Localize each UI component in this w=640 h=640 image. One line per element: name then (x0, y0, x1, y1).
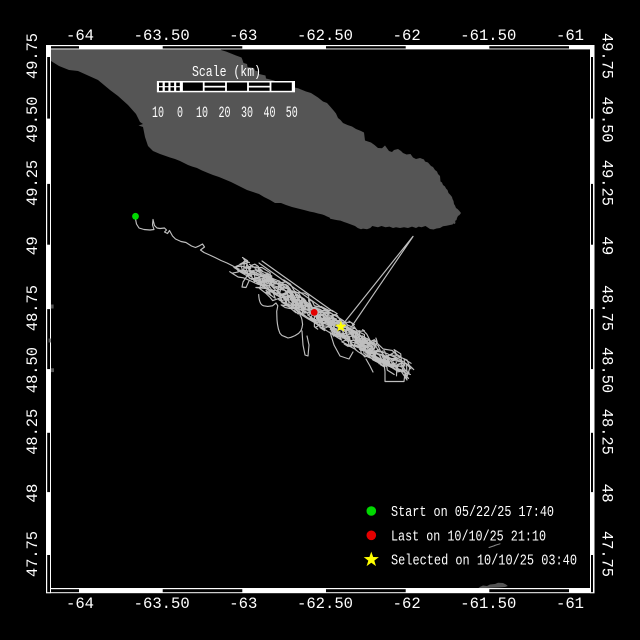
svg-text:-63: -63 (229, 27, 257, 45)
svg-text:48.75: 48.75 (598, 285, 616, 331)
svg-text:Last on 10/10/25 21:10: Last on 10/10/25 21:10 (391, 529, 546, 545)
svg-text:-62: -62 (393, 595, 421, 613)
svg-text:-62: -62 (393, 27, 421, 45)
svg-text:48.25: 48.25 (598, 409, 616, 455)
svg-text:-61.50: -61.50 (460, 595, 516, 613)
svg-text:47.75: 47.75 (24, 531, 42, 577)
svg-text:10: 10 (152, 104, 164, 122)
svg-text:48.25: 48.25 (24, 409, 42, 455)
svg-text:48: 48 (24, 484, 42, 503)
svg-text:Start on 05/22/25 17:40: Start on 05/22/25 17:40 (391, 505, 554, 521)
svg-text:-63.50: -63.50 (134, 595, 190, 613)
svg-text:50: 50 (286, 104, 298, 122)
svg-text:48: 48 (598, 484, 616, 503)
svg-text:10: 10 (196, 104, 208, 122)
svg-text:-64: -64 (66, 595, 94, 613)
svg-text:-61: -61 (556, 595, 584, 613)
svg-text:-61.50: -61.50 (460, 27, 516, 45)
svg-text:-63.50: -63.50 (134, 27, 190, 45)
svg-text:49.75: 49.75 (598, 33, 616, 79)
svg-text:48.50: 48.50 (598, 347, 616, 393)
svg-text:49.75: 49.75 (24, 33, 42, 79)
svg-text:-62.50: -62.50 (297, 595, 353, 613)
svg-text:Selected on 10/10/25 03:40: Selected on 10/10/25 03:40 (391, 554, 577, 570)
svg-text:48.75: 48.75 (24, 285, 42, 331)
svg-text:49.50: 49.50 (598, 97, 616, 143)
svg-text:-62.50: -62.50 (297, 27, 353, 45)
svg-text:-63: -63 (229, 595, 257, 613)
svg-text:49.50: 49.50 (24, 97, 42, 143)
svg-text:49: 49 (24, 236, 42, 255)
svg-text:48.50: 48.50 (24, 347, 42, 393)
svg-text:-61: -61 (556, 27, 584, 45)
svg-text:49.25: 49.25 (598, 160, 616, 206)
svg-text:Scale (km): Scale (km) (192, 64, 261, 81)
svg-text:49: 49 (598, 236, 616, 255)
svg-text:-64: -64 (66, 27, 94, 45)
svg-text:0: 0 (177, 104, 183, 122)
svg-text:47.75: 47.75 (598, 531, 616, 577)
svg-text:49.25: 49.25 (24, 160, 42, 206)
svg-text:40: 40 (264, 104, 276, 122)
svg-text:30: 30 (241, 104, 253, 122)
svg-text:20: 20 (219, 104, 231, 122)
